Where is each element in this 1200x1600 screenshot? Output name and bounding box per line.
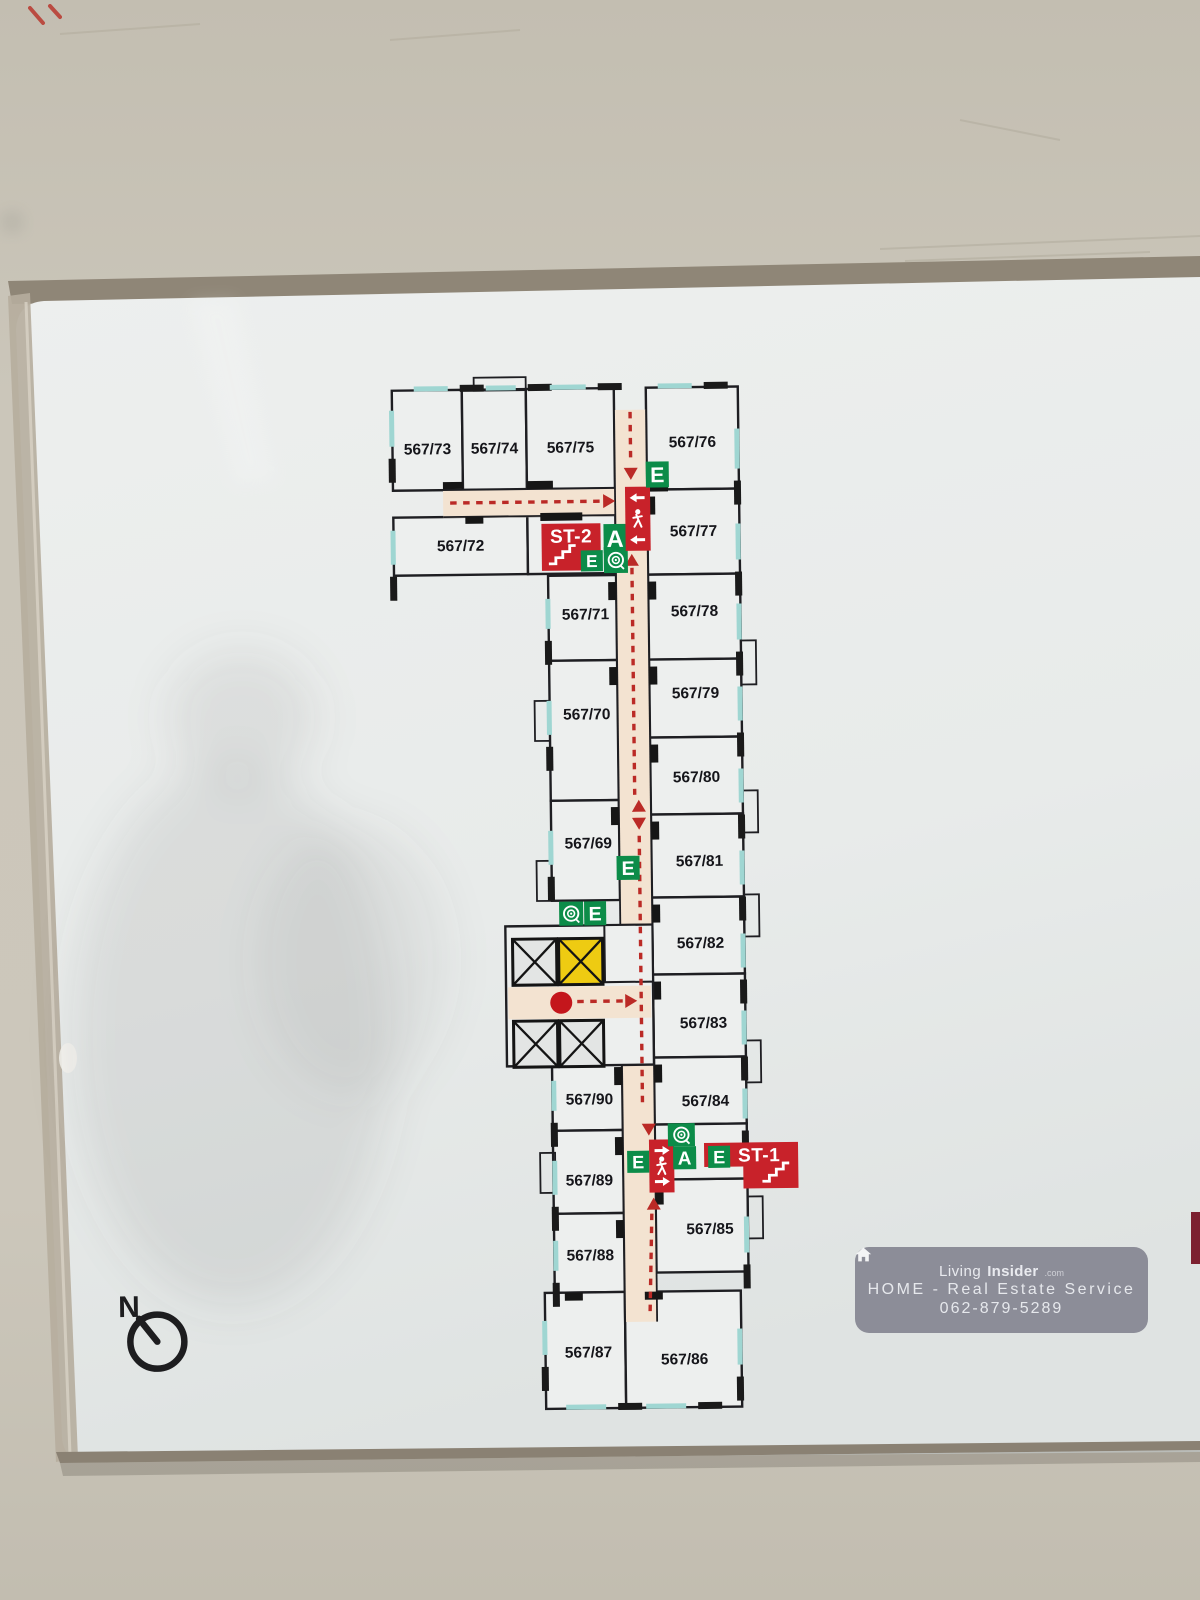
sign-e: E [708, 1146, 730, 1168]
window-mark [414, 386, 448, 391]
elevator-shaft [512, 939, 557, 986]
room-label: 567/83 [680, 1015, 728, 1033]
door-mark [616, 1220, 624, 1238]
window-mark [547, 701, 552, 735]
wall-tick [389, 459, 396, 483]
elevator-shaft [559, 1020, 604, 1067]
sign-letter: E [650, 463, 665, 487]
sign-fire-hose [668, 1123, 695, 1146]
window-mark [735, 524, 740, 560]
wall-tick [542, 1367, 549, 1391]
room-label: 567/80 [673, 769, 721, 787]
room-label: 567/73 [404, 441, 452, 459]
room-label: 567/87 [565, 1344, 613, 1362]
wall-tick [546, 747, 553, 771]
watermark-phone: 062-879-5289 [940, 1300, 1064, 1318]
wall-tick [618, 1403, 642, 1410]
wall-tick [598, 383, 622, 390]
photo-of-evacuation-plan: 567/73567/74567/75567/76567/72567/77567/… [0, 0, 1200, 1600]
wall-tick [545, 641, 552, 665]
scene-canvas: 567/73567/74567/75567/76567/72567/77567/… [0, 0, 1200, 1600]
door-mark [650, 745, 658, 763]
room-label: 567/79 [672, 685, 720, 703]
door-mark [565, 1292, 583, 1300]
window-mark [738, 768, 743, 802]
window-mark [744, 1216, 749, 1252]
watermark-badge: LivingInsider.com HOME - Real Estate Ser… [855, 1247, 1148, 1333]
window-mark [736, 603, 741, 639]
watermark-brand-prefix: Living [939, 1263, 981, 1280]
room-label: 567/77 [670, 523, 718, 541]
room-label: 567/72 [437, 538, 485, 556]
house-icon [855, 1247, 872, 1262]
wall-tick [460, 385, 484, 392]
room-567-75 [526, 388, 615, 489]
door-mark [614, 1067, 622, 1085]
wall-tick [552, 1207, 559, 1231]
sign-fire-hose [604, 547, 628, 573]
sign-e: E [616, 856, 639, 880]
door-mark [654, 1064, 662, 1082]
room-label: 567/88 [567, 1247, 615, 1265]
room-label: 567/90 [566, 1091, 614, 1109]
elevator-highlighted [558, 938, 603, 985]
window-mark [742, 1088, 747, 1118]
window-mark [548, 831, 553, 865]
wall-tick [548, 877, 555, 901]
wall-tick [740, 979, 747, 1003]
door-mark [443, 482, 463, 489]
room-label: 567/69 [564, 835, 612, 853]
red-edge-object [1191, 1212, 1200, 1264]
wall-tick [736, 651, 743, 675]
window-mark [550, 384, 586, 389]
wall-tick [734, 480, 741, 504]
room-label: 567/70 [563, 706, 611, 724]
wall-tick [553, 1283, 560, 1307]
wall-tick [528, 384, 552, 391]
wall-tick [735, 571, 742, 595]
room-label: 567/71 [562, 606, 610, 624]
door-mark [527, 481, 553, 489]
sign-e: E [627, 1151, 649, 1173]
door-mark [652, 905, 660, 923]
room-label: 567/74 [471, 440, 519, 458]
door-mark [540, 512, 582, 521]
room-label: 567/81 [676, 853, 724, 871]
room-567-70 [549, 660, 619, 801]
wall-tick [390, 577, 397, 601]
sign-fire-hose [559, 901, 583, 925]
window-mark [545, 599, 550, 629]
window-mark [741, 1010, 746, 1044]
watermark-brand-line: LivingInsider.com [939, 1263, 1064, 1280]
elevator-shaft [513, 1021, 558, 1068]
sign-e: E [584, 901, 606, 925]
room-567-84 [654, 1056, 747, 1124]
watermark-brand-suffix: .com [1044, 1268, 1064, 1278]
window-mark [740, 933, 745, 967]
sign-e: E [646, 461, 669, 487]
sign-exit-direction [625, 487, 651, 551]
wall-tick [737, 1377, 744, 1401]
window-mark [646, 1403, 686, 1408]
door-mark [645, 1292, 663, 1300]
room-label: 567/86 [661, 1351, 709, 1369]
door-mark [608, 582, 616, 600]
sign-letter: E [713, 1147, 725, 1167]
room-label: 567/76 [669, 434, 717, 452]
room-label: 567/89 [566, 1172, 614, 1190]
wall-tick [551, 1123, 558, 1147]
door-mark [648, 582, 656, 600]
compass-north-label: N [118, 1291, 140, 1324]
wall-smudge [2, 212, 22, 232]
room-label: 567/82 [677, 935, 725, 953]
sign-a: A [673, 1146, 696, 1169]
wall-tick [737, 732, 744, 756]
sign-letter: E [586, 551, 598, 571]
sign-letter: E [588, 903, 601, 925]
room-label: 567/78 [671, 603, 719, 621]
sign-letter: E [632, 1152, 644, 1172]
window-mark [552, 1161, 557, 1195]
room-label: 567/84 [682, 1093, 730, 1111]
window-mark [737, 686, 742, 720]
utility-room [604, 925, 653, 983]
window-mark [566, 1404, 606, 1409]
window-mark [658, 383, 692, 388]
stairway-label: ST-1 [738, 1145, 780, 1167]
door-mark [609, 667, 617, 685]
watermark-service-line: HOME - Real Estate Service [868, 1281, 1136, 1299]
window-mark [551, 1081, 556, 1111]
window-mark [734, 429, 739, 469]
wall-tick [738, 814, 745, 838]
watermark-brand-bold: Insider [987, 1263, 1038, 1280]
window-mark [389, 411, 394, 447]
window-mark [553, 1241, 558, 1271]
room-567-73 [392, 390, 463, 491]
room-label: 567/75 [547, 439, 595, 457]
wall-tick [704, 382, 728, 389]
sign-letter: A [678, 1147, 692, 1168]
door-mark [649, 667, 657, 685]
wall-tick [741, 1056, 748, 1080]
wall-tick [698, 1402, 722, 1409]
sign-exit-direction [649, 1139, 675, 1192]
door-mark [615, 1137, 623, 1155]
window-mark [542, 1321, 547, 1355]
window-mark [390, 531, 395, 565]
door-mark [651, 822, 659, 840]
sign-e: E [581, 550, 603, 571]
sign-letter: E [621, 858, 634, 880]
wall-tick [739, 896, 746, 920]
wall-tick [743, 1264, 750, 1288]
door-mark [611, 807, 619, 825]
window-mark [739, 850, 744, 884]
room-label: 567/85 [686, 1221, 734, 1239]
window-mark [737, 1329, 742, 1365]
door-mark [465, 517, 483, 524]
window-mark [486, 385, 516, 390]
